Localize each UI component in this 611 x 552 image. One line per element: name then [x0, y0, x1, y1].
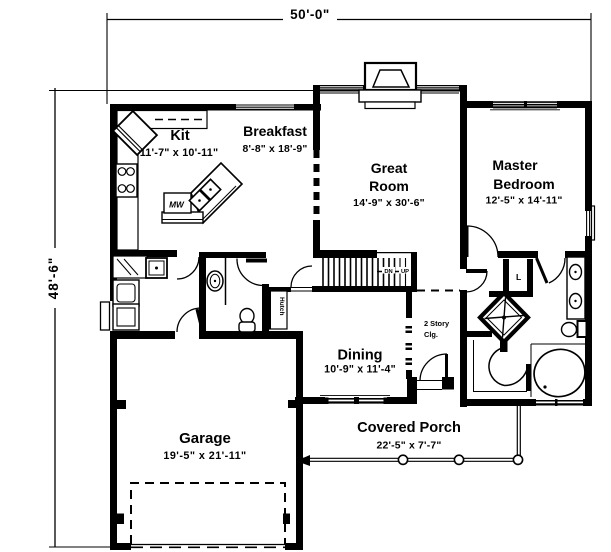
svg-text:14'-9" x 30'-6": 14'-9" x 30'-6"	[353, 197, 425, 209]
svg-text:19'-5" x 21'-11": 19'-5" x 21'-11"	[163, 450, 246, 462]
svg-text:Breakfast: Breakfast	[243, 123, 307, 139]
svg-text:L: L	[516, 272, 521, 282]
svg-text:Great: Great	[371, 160, 408, 176]
svg-text:Room: Room	[369, 178, 409, 194]
svg-text:Hutch: Hutch	[278, 297, 285, 315]
svg-text:12'-5" x 14'-11": 12'-5" x 14'-11"	[485, 195, 562, 207]
svg-text:Kit: Kit	[170, 128, 190, 144]
svg-text:22'-5" x 7'-7": 22'-5" x 7'-7"	[377, 441, 442, 452]
svg-text:8'-8" x 18'-9": 8'-8" x 18'-9"	[243, 144, 308, 155]
svg-text:Garage: Garage	[179, 430, 231, 447]
svg-text:UP: UP	[401, 269, 409, 275]
svg-text:Bedroom: Bedroom	[493, 176, 554, 192]
svg-text:MW: MW	[169, 200, 185, 210]
svg-text:Covered Porch: Covered Porch	[357, 420, 461, 436]
svg-text:Master: Master	[492, 157, 538, 173]
svg-text:50'-0": 50'-0"	[290, 7, 330, 22]
svg-text:48'-6": 48'-6"	[46, 257, 61, 300]
svg-text:10'-9" x 11'-4": 10'-9" x 11'-4"	[324, 364, 396, 376]
svg-text:DN: DN	[384, 269, 392, 275]
svg-text:Clg.: Clg.	[424, 330, 438, 339]
svg-text:11'-7" x 10'-11": 11'-7" x 10'-11"	[140, 147, 219, 159]
svg-text:2 Story: 2 Story	[424, 319, 450, 328]
svg-text:Dining: Dining	[337, 348, 382, 364]
